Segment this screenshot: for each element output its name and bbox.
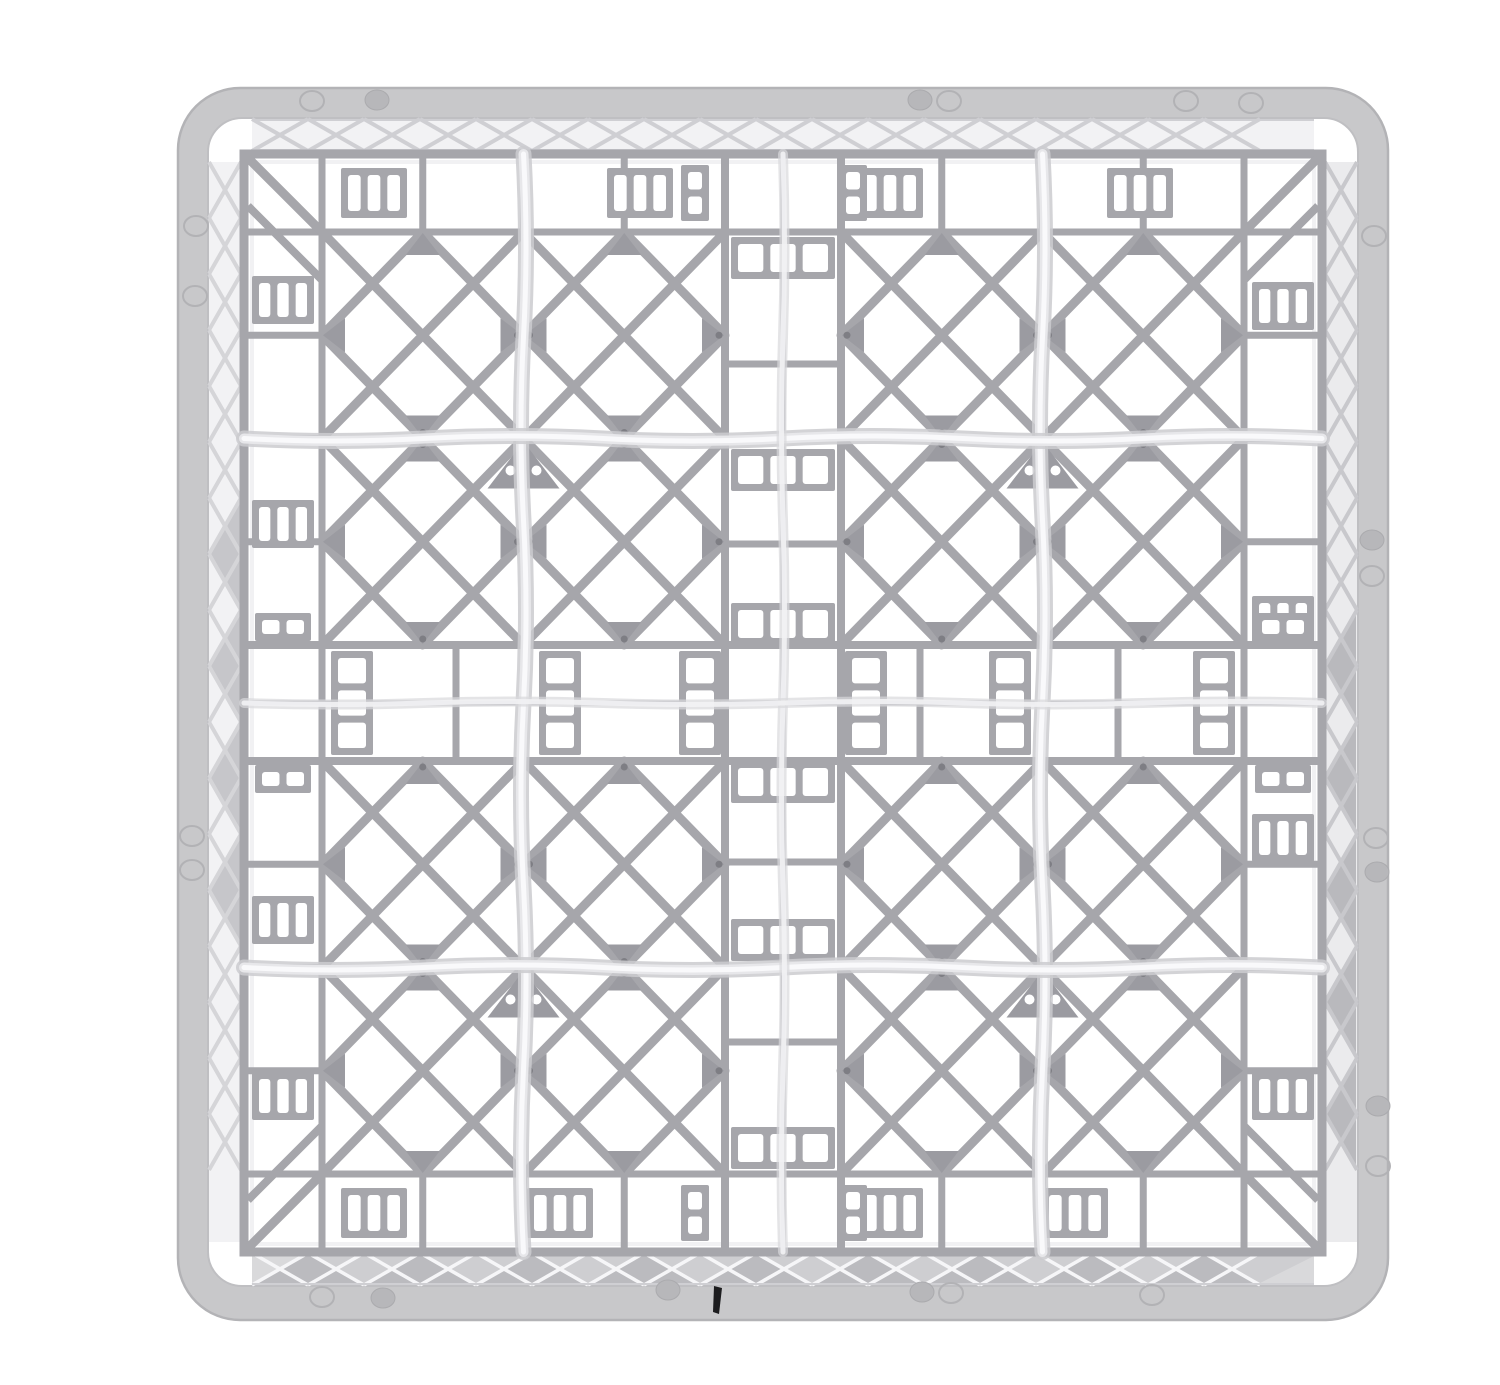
mold-mark — [1360, 530, 1384, 550]
mold-mark — [1365, 862, 1389, 882]
mold-mark — [908, 90, 932, 110]
mold-mark — [1366, 1096, 1390, 1116]
mold-mark — [365, 90, 389, 110]
mold-mark — [910, 1282, 934, 1302]
mold-mark — [371, 1288, 395, 1308]
product-photo-canvas — [0, 0, 1500, 1385]
glass-rack-photo — [0, 0, 1500, 1385]
mold-mark — [656, 1280, 680, 1300]
